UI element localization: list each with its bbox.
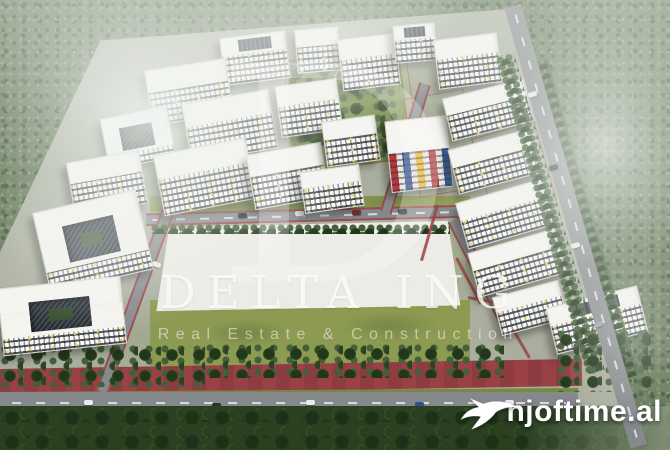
- swallow-bird-icon: [457, 391, 522, 433]
- car: [306, 400, 315, 405]
- aerial-site-render: D DELTA ING Real Estate & Construction n…: [0, 0, 670, 450]
- car: [84, 400, 93, 405]
- apartment-building: [321, 114, 381, 167]
- building-facade: [389, 148, 453, 192]
- site-logo-text: njoftime.al: [506, 395, 662, 429]
- car: [398, 209, 407, 214]
- watermark-title: DELTA ING: [0, 266, 670, 319]
- street-trees: [150, 224, 450, 234]
- car: [295, 211, 304, 216]
- site-logo: njoftime.al: [458, 394, 662, 430]
- inner-courtyard: [119, 122, 156, 151]
- watermark-subtitle: Real Estate & Construction: [0, 326, 670, 344]
- car: [352, 210, 361, 215]
- commercial-building: [384, 115, 453, 193]
- apartment-building: [299, 164, 364, 214]
- atmospheric-haze: [0, 0, 670, 120]
- car: [238, 213, 247, 218]
- tree-row: [205, 344, 505, 378]
